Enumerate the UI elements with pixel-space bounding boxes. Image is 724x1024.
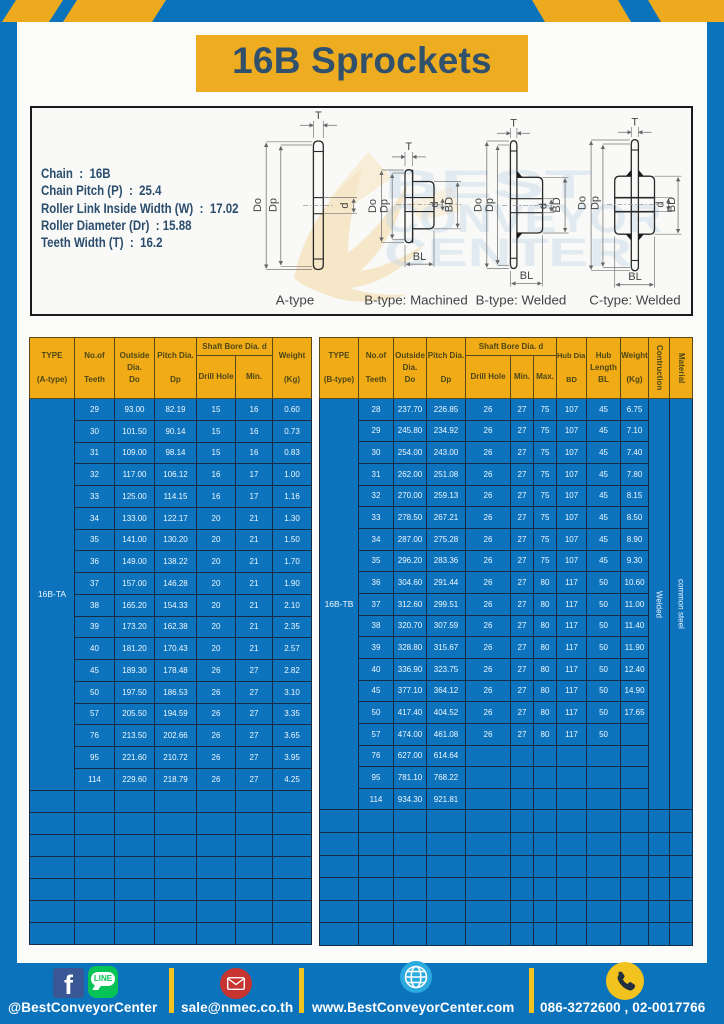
svg-text:B-type: Machined: B-type: Machined bbox=[364, 293, 467, 308]
svg-text:Do: Do bbox=[367, 199, 379, 213]
svg-text:Dp: Dp bbox=[379, 199, 391, 213]
svg-text:Dp: Dp bbox=[484, 198, 496, 212]
svg-text:Do: Do bbox=[252, 198, 264, 212]
svg-text:A-type: A-type bbox=[276, 293, 314, 308]
svg-text:BD: BD bbox=[551, 197, 563, 212]
svg-text:T: T bbox=[631, 117, 638, 129]
svg-text:d: d bbox=[339, 203, 351, 209]
svg-text:T: T bbox=[405, 141, 412, 153]
svg-text:BL: BL bbox=[628, 271, 641, 283]
svg-text:T: T bbox=[315, 110, 322, 122]
svg-text:d: d bbox=[538, 203, 550, 209]
svg-text:Do: Do bbox=[473, 198, 485, 212]
svg-text:Do: Do bbox=[577, 196, 589, 210]
svg-text:B-type: Welded: B-type: Welded bbox=[476, 293, 567, 308]
svg-text:C-type: Welded: C-type: Welded bbox=[589, 293, 680, 308]
svg-text:BL: BL bbox=[520, 270, 533, 282]
svg-text:Dp: Dp bbox=[268, 198, 280, 212]
svg-text:T: T bbox=[510, 118, 517, 130]
svg-text:Dp: Dp bbox=[589, 196, 601, 210]
svg-text:BD: BD bbox=[666, 197, 678, 212]
svg-text:BL: BL bbox=[413, 251, 426, 263]
